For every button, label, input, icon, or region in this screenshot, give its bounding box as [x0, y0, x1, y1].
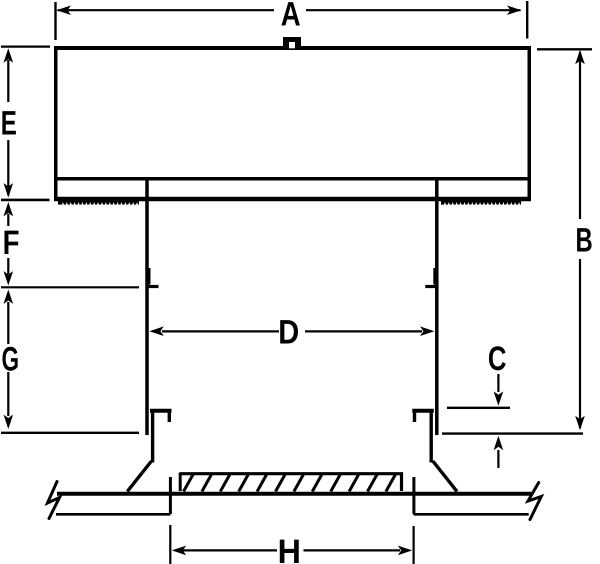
svg-text:C: C [488, 340, 507, 378]
svg-text:E: E [1, 104, 17, 142]
svg-text:F: F [3, 224, 20, 262]
svg-text:A: A [281, 0, 301, 33]
svg-text:B: B [576, 222, 593, 260]
svg-text:D: D [278, 314, 299, 352]
svg-text:H: H [278, 533, 301, 564]
svg-text:G: G [2, 340, 20, 378]
